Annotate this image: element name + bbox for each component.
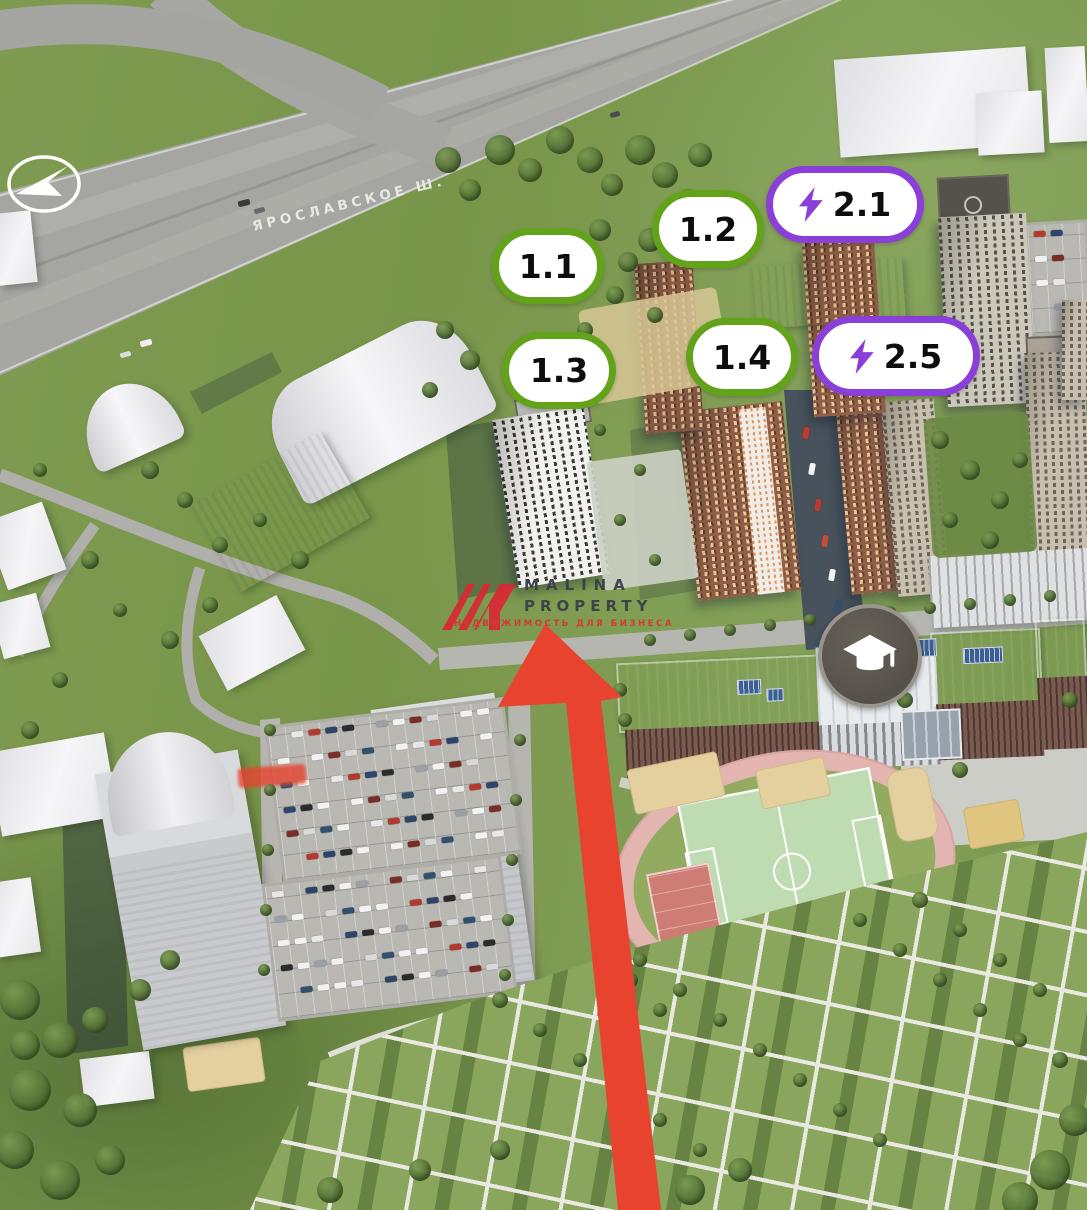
tree — [973, 1003, 987, 1017]
tree — [460, 350, 480, 370]
parked-car — [387, 817, 400, 824]
parked-car — [325, 726, 338, 733]
tree — [161, 631, 179, 649]
parked-car — [404, 815, 417, 822]
brand-name: MALINA — [524, 576, 632, 594]
parked-car — [311, 935, 324, 942]
parked-car — [390, 842, 403, 849]
parked-car — [379, 927, 392, 934]
tree — [21, 721, 39, 739]
parked-car — [283, 806, 296, 813]
parked-car — [483, 939, 496, 946]
parked-car — [385, 975, 398, 982]
tree — [942, 512, 958, 528]
parked-car — [334, 982, 347, 989]
tree — [991, 491, 1009, 509]
tree — [622, 972, 638, 988]
parked-car — [342, 724, 355, 731]
badge-1-2: 1.2 — [652, 190, 764, 268]
parked-car — [328, 751, 341, 758]
parked-car — [460, 892, 473, 899]
parked-car — [277, 757, 290, 764]
tree — [435, 147, 461, 173]
tree — [652, 162, 678, 188]
parked-car — [429, 921, 442, 928]
tree — [804, 614, 816, 626]
tree — [964, 598, 976, 610]
parked-car — [412, 740, 425, 747]
tree — [177, 492, 193, 508]
tree — [833, 1103, 847, 1117]
tree — [264, 784, 276, 796]
parked-car — [317, 984, 330, 991]
tree — [510, 794, 522, 806]
parked-car — [337, 824, 350, 831]
parking-lot — [265, 858, 514, 1019]
parked-car — [362, 929, 375, 936]
tree — [202, 597, 218, 613]
tree — [258, 964, 270, 976]
tree — [724, 624, 736, 636]
parked-car — [469, 783, 482, 790]
parked-car — [1034, 231, 1046, 238]
tree — [931, 431, 949, 449]
parked-car — [365, 771, 378, 778]
tree — [160, 950, 180, 970]
parked-car — [320, 826, 333, 833]
tree — [633, 953, 647, 967]
parked-car — [423, 872, 436, 879]
tree — [1012, 452, 1028, 468]
parked-car — [376, 720, 389, 727]
parked-car — [357, 846, 370, 853]
parking-lot — [268, 700, 520, 880]
graduation-cap-icon — [841, 631, 899, 681]
tree — [893, 943, 907, 957]
parked-car — [421, 813, 434, 820]
parked-car — [297, 961, 310, 968]
parked-car — [409, 898, 422, 905]
tree — [82, 1007, 108, 1033]
parked-car — [1036, 280, 1048, 287]
tree — [960, 460, 980, 480]
parked-car — [463, 916, 476, 923]
parked-car — [399, 949, 412, 956]
tree — [499, 969, 511, 981]
badge-2-1: 2.1 — [766, 166, 924, 243]
tree — [141, 461, 159, 479]
tree — [422, 382, 438, 398]
parked-car — [407, 840, 420, 847]
parked-car — [286, 830, 299, 837]
tree — [684, 629, 696, 641]
tree — [577, 147, 603, 173]
parked-car — [429, 738, 442, 745]
tree — [912, 892, 928, 908]
tree — [952, 762, 968, 778]
parked-car — [424, 838, 437, 845]
tree — [52, 672, 68, 688]
tree — [436, 321, 454, 339]
parked-car — [486, 963, 499, 970]
white-building — [975, 90, 1044, 155]
parked-car — [351, 980, 364, 987]
parked-car — [480, 914, 493, 921]
parked-car — [348, 773, 361, 780]
badge-1-4: 1.4 — [686, 318, 798, 396]
tree — [40, 1160, 80, 1200]
tree — [9, 1069, 51, 1111]
parked-car — [345, 931, 358, 938]
right-edge-tower — [1062, 300, 1087, 400]
tree — [618, 713, 632, 727]
parked-car — [376, 902, 389, 909]
parked-car — [308, 729, 321, 736]
parked-car — [1035, 255, 1047, 262]
tree — [693, 1143, 707, 1157]
parked-car — [446, 918, 459, 925]
tree — [793, 1073, 807, 1087]
parked-car — [441, 836, 454, 843]
tree — [625, 135, 655, 165]
tree — [634, 464, 646, 476]
parked-car — [415, 765, 428, 772]
loop-road — [0, 24, 380, 105]
parked-car — [474, 866, 487, 873]
parked-car — [449, 943, 462, 950]
parked-car — [331, 957, 344, 964]
tree — [924, 602, 936, 614]
parked-car — [382, 769, 395, 776]
tree — [713, 1013, 727, 1027]
parked-car — [402, 973, 415, 980]
parked-car — [435, 969, 448, 976]
parked-car — [356, 880, 369, 887]
tree — [1030, 1150, 1070, 1190]
brand-name-2: PROPERTY — [524, 597, 653, 615]
tree — [63, 1093, 97, 1127]
watermark: MALINA PROPERTY НЕДВИЖИМОСТЬ ДЛЯ БИЗНЕСА — [440, 574, 665, 642]
parked-car — [359, 905, 372, 912]
parked-car — [311, 753, 324, 760]
parked-car — [455, 809, 468, 816]
parked-car — [323, 850, 336, 857]
parked-car — [325, 909, 338, 916]
tree — [993, 953, 1007, 967]
tree — [618, 252, 638, 272]
parked-car — [314, 959, 327, 966]
parked-car — [406, 874, 419, 881]
parked-car — [368, 795, 381, 802]
badge-label: 1.2 — [679, 210, 737, 249]
badge-label: 1.1 — [519, 247, 577, 286]
parked-car — [392, 718, 405, 725]
parked-car — [486, 781, 499, 788]
tree — [459, 179, 481, 201]
tree — [253, 513, 267, 527]
parked-car — [446, 736, 459, 743]
parked-car — [469, 965, 482, 972]
parked-car — [449, 761, 462, 768]
parked-car — [362, 747, 375, 754]
parked-car — [291, 731, 304, 738]
parked-car — [382, 951, 395, 958]
parked-car — [401, 791, 414, 798]
tree — [653, 1113, 667, 1127]
tree — [95, 1145, 125, 1175]
tree — [675, 1175, 705, 1205]
tree — [613, 1083, 627, 1097]
tree — [1033, 983, 1047, 997]
parked-car — [440, 870, 453, 877]
parked-car — [492, 829, 505, 836]
tree — [533, 1023, 547, 1037]
tree — [33, 463, 47, 477]
parked-car — [390, 876, 403, 883]
tree — [981, 531, 999, 549]
lightning-bolt-icon — [850, 339, 875, 374]
parked-car — [415, 947, 428, 954]
parked-car — [452, 785, 465, 792]
parked-car — [294, 937, 307, 944]
parked-car — [291, 913, 304, 920]
parked-car — [426, 896, 439, 903]
tree — [260, 904, 272, 916]
parked-car — [305, 886, 318, 893]
parked-car — [300, 986, 313, 993]
tree — [673, 983, 687, 997]
tree — [409, 1159, 431, 1181]
tree — [212, 537, 228, 553]
parked-car — [435, 787, 448, 794]
tree — [1004, 594, 1016, 606]
parked-car — [472, 807, 485, 814]
tree — [1013, 1033, 1027, 1047]
white-building — [1045, 46, 1087, 143]
parked-car — [339, 882, 352, 889]
parked-car — [300, 804, 313, 811]
tree — [42, 1022, 78, 1058]
tree — [764, 619, 776, 631]
parked-car — [1050, 230, 1062, 237]
tree — [1002, 1182, 1038, 1210]
tree — [81, 551, 99, 569]
parked-car — [351, 797, 364, 804]
tree — [593, 923, 607, 937]
tree — [1052, 1052, 1068, 1068]
parked-car — [271, 891, 284, 898]
tree — [573, 1053, 587, 1067]
tree — [728, 1158, 752, 1182]
tree — [753, 1043, 767, 1057]
tree — [933, 973, 947, 987]
parked-car — [460, 710, 473, 717]
parked-car — [342, 907, 355, 914]
badge-label: 1.3 — [530, 351, 588, 390]
parked-car — [432, 763, 445, 770]
tree — [688, 143, 712, 167]
tree — [485, 135, 515, 165]
parked-car — [395, 742, 408, 749]
parked-car — [418, 971, 431, 978]
parked-car — [365, 953, 378, 960]
badge-label: 1.4 — [713, 338, 771, 377]
parked-car — [489, 805, 502, 812]
navigation-arrow-icon — [4, 150, 86, 224]
tree — [873, 1133, 887, 1147]
parked-car — [409, 716, 422, 723]
tree — [1044, 590, 1056, 602]
tree — [514, 734, 526, 746]
parked-car — [331, 775, 344, 782]
low-slab — [928, 548, 1087, 628]
parked-car — [303, 828, 316, 835]
tree — [262, 844, 274, 856]
tree — [113, 603, 127, 617]
parked-car — [384, 793, 397, 800]
tree — [492, 992, 508, 1008]
lightning-bolt-icon — [799, 187, 824, 222]
parked-car — [340, 848, 353, 855]
tree — [647, 307, 663, 323]
tree — [853, 913, 867, 927]
parked-car — [466, 758, 479, 765]
tree — [10, 1030, 40, 1060]
parked-car — [480, 732, 493, 739]
tree — [1062, 692, 1078, 708]
parked-car — [1053, 279, 1065, 286]
tree — [506, 854, 518, 866]
tree — [953, 923, 967, 937]
masterplan-scene: ЯРОСЛАВСКОЕ Ш. — [0, 0, 1087, 1210]
parked-car — [475, 831, 488, 838]
tree — [490, 1140, 510, 1160]
badge-label: 2.5 — [884, 337, 942, 376]
tree — [653, 1003, 667, 1017]
tree — [613, 683, 627, 697]
tree — [1059, 1104, 1087, 1136]
tree — [606, 286, 624, 304]
tree — [317, 1177, 343, 1203]
brand-tagline: НЕДВИЖИМОСТЬ ДЛЯ БИЗНЕСА — [454, 619, 674, 629]
parked-car — [317, 801, 330, 808]
tree — [594, 424, 606, 436]
parked-car — [277, 939, 290, 946]
tree — [649, 554, 661, 566]
tree — [264, 724, 276, 736]
parked-car — [280, 964, 293, 971]
parked-car — [322, 884, 335, 891]
tree — [129, 979, 151, 1001]
parked-car — [396, 925, 409, 932]
parked-car — [466, 941, 479, 948]
parked-car — [274, 915, 287, 922]
badge-1-1: 1.1 — [492, 228, 604, 304]
tree — [601, 174, 623, 196]
tree — [291, 551, 309, 569]
graduation-cap-marker — [818, 604, 922, 708]
tree — [614, 514, 626, 526]
parked-car — [426, 714, 439, 721]
parked-car — [306, 852, 319, 859]
parked-car — [1052, 254, 1064, 261]
badge-2-5: 2.5 — [812, 316, 980, 396]
tree — [546, 126, 574, 154]
parked-car — [443, 894, 456, 901]
parked-car — [477, 708, 490, 715]
tree — [518, 158, 542, 182]
tree — [0, 980, 40, 1020]
badge-label: 2.1 — [833, 185, 891, 224]
badge-1-3: 1.3 — [502, 332, 616, 409]
parked-car — [371, 820, 384, 827]
tree — [502, 914, 514, 926]
parked-car — [345, 749, 358, 756]
